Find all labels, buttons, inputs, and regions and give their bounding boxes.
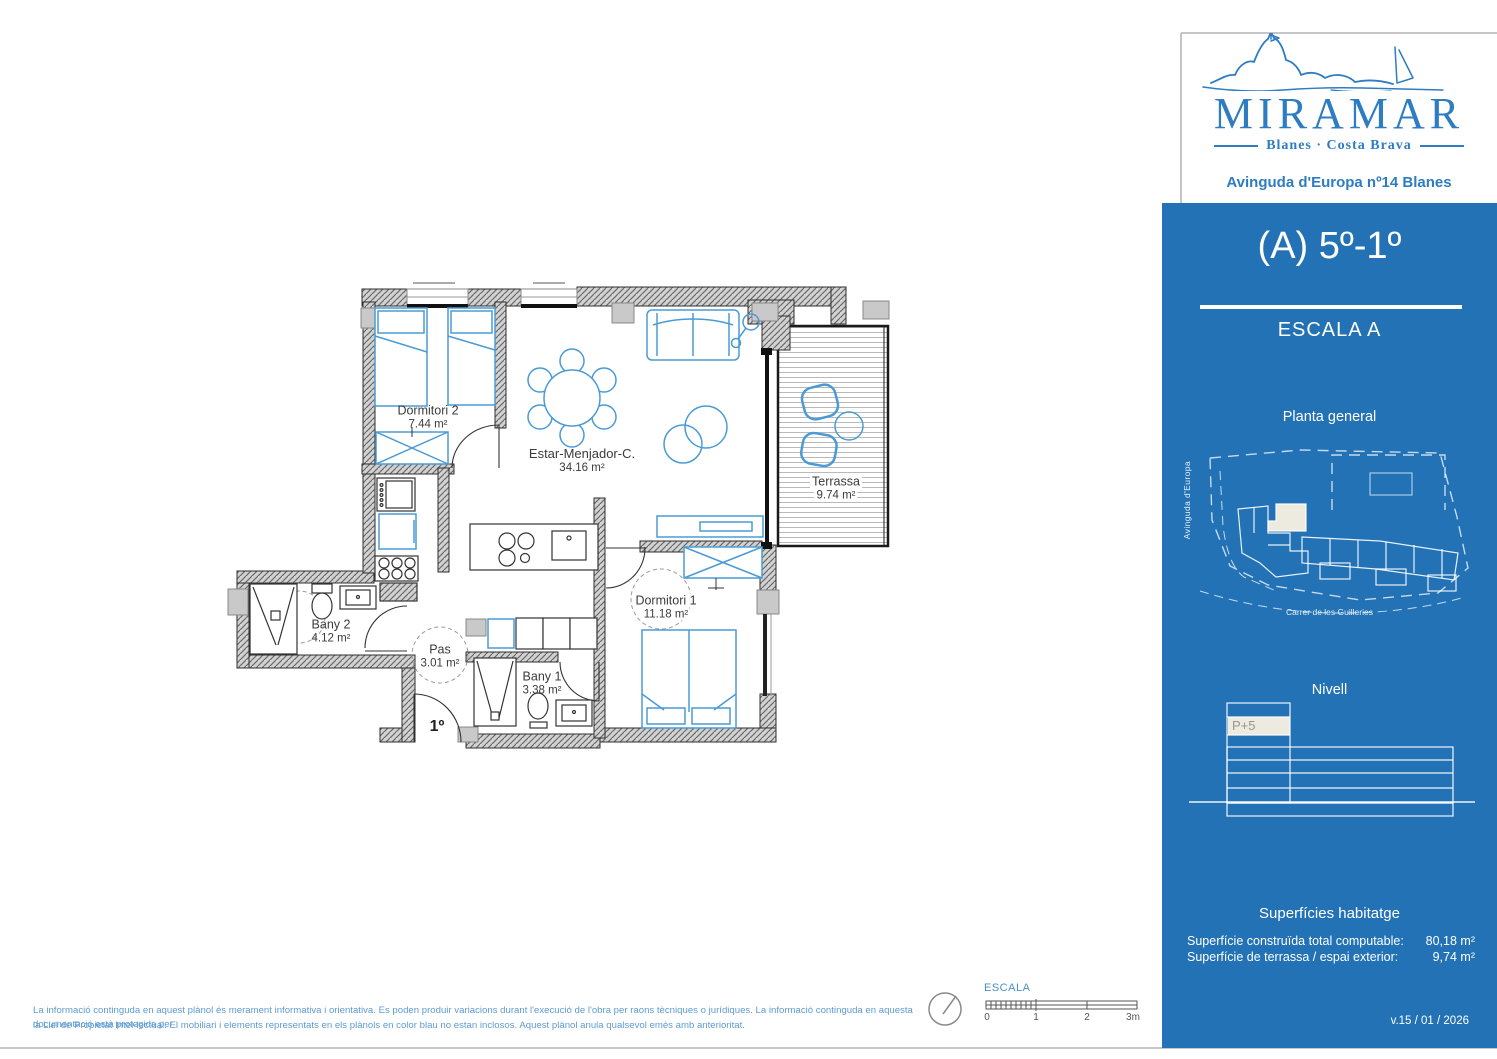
tagline-rule-right <box>1420 145 1464 147</box>
room-name: Pas <box>429 643 451 657</box>
room-area: 3.01 m² <box>421 658 460 670</box>
surface-label: Superfície de terrassa / espai exterior: <box>1187 949 1398 965</box>
level-highlight-label: P+5 <box>1232 718 1256 733</box>
staircase-label: ESCALA A <box>1162 319 1497 342</box>
title-block: MIRAMAR Blanes · Costa Brava Avinguda d'… <box>1181 33 1497 203</box>
room-name: Dormitori 2 <box>397 404 458 418</box>
room-name: Estar-Menjador-C. <box>529 446 635 461</box>
street-label-left: Avinguda d'Europa <box>1182 461 1192 539</box>
divider-rule <box>1200 305 1462 309</box>
room-label-bany-2: Bany 2 4.12 m² <box>312 619 351 646</box>
room-name: Bany 2 <box>312 618 351 632</box>
entrance-label: 1º <box>430 718 445 736</box>
street-label-bottom: Carrer de les Guilleries <box>1162 607 1497 617</box>
surface-value: 80,18 m² <box>1426 933 1475 949</box>
room-label-dormitori-2: Dormitori 2 7.44 m² <box>397 405 458 432</box>
plan-sheet: Dormitori 2 7.44 m² Estar-Menjador-C. 34… <box>0 0 1497 1059</box>
site-plan-title: Planta general <box>1162 409 1497 425</box>
surfaces-title: Superfícies habitatge <box>1162 905 1497 922</box>
highlighted-unit <box>1268 504 1306 531</box>
scale-tick-3: 3m <box>1126 1012 1140 1023</box>
level-title: Nivell <box>1162 682 1497 698</box>
room-area: 3.38 m² <box>523 685 562 697</box>
unit-title: (A) 5º-1º <box>1162 225 1497 268</box>
room-area: 9.74 m² <box>815 490 858 502</box>
site-plan-map <box>1180 441 1480 633</box>
room-name: Dormitori 1 <box>633 594 698 608</box>
room-area: 11.18 m² <box>642 609 691 621</box>
surface-label: Superfície construïda total computable: <box>1187 933 1404 949</box>
room-name: Bany 1 <box>523 670 562 684</box>
scale-bar-label: ESCALA <box>984 982 1030 994</box>
disclaimer-line-2: la Llei de Propietat Intel·lectual. El m… <box>33 1019 913 1033</box>
room-label-dormitori-1: Dormitori 1 11.18 m² <box>633 595 698 622</box>
room-area: 34.16 m² <box>559 462 604 474</box>
north-compass <box>929 993 961 1025</box>
miramar-logo-icon <box>1181 33 1497 91</box>
room-label-pas: Pas 3.01 m² <box>421 644 460 671</box>
room-area: 7.44 m² <box>409 419 448 431</box>
version-label: v.15 / 01 / 2026 <box>1391 1015 1469 1027</box>
level-diagram <box>1185 697 1477 821</box>
brand-name: MIRAMAR <box>1181 93 1497 135</box>
room-label-bany-1: Bany 1 3.38 m² <box>523 671 562 698</box>
surface-row: Superfície construïda total computable: … <box>1187 933 1475 949</box>
project-address: Avinguda d'Europa nº14 Blanes <box>1181 174 1497 191</box>
surface-row: Superfície de terrassa / espai exterior:… <box>1187 949 1475 965</box>
room-label-terrassa: Terrassa 9.74 m² <box>810 476 862 503</box>
terrace-deck <box>778 326 888 546</box>
room-area: 4.12 m² <box>312 633 351 645</box>
scale-bar <box>986 999 1137 1011</box>
info-sidebar: (A) 5º-1º ESCALA A Planta general <box>1162 203 1497 1048</box>
surface-value: 9,74 m² <box>1433 949 1475 965</box>
scale-tick-0: 0 <box>984 1012 990 1023</box>
tagline-rule-left <box>1214 145 1258 147</box>
brand-tagline-row: Blanes · Costa Brava <box>1181 138 1497 154</box>
scale-tick-2: 2 <box>1084 1012 1090 1023</box>
room-label-estar: Estar-Menjador-C. 34.16 m² <box>529 447 635 475</box>
room-name: Terrassa <box>810 475 862 489</box>
brand-tagline: Blanes · Costa Brava <box>1266 138 1412 154</box>
scale-tick-1: 1 <box>1033 1012 1039 1023</box>
